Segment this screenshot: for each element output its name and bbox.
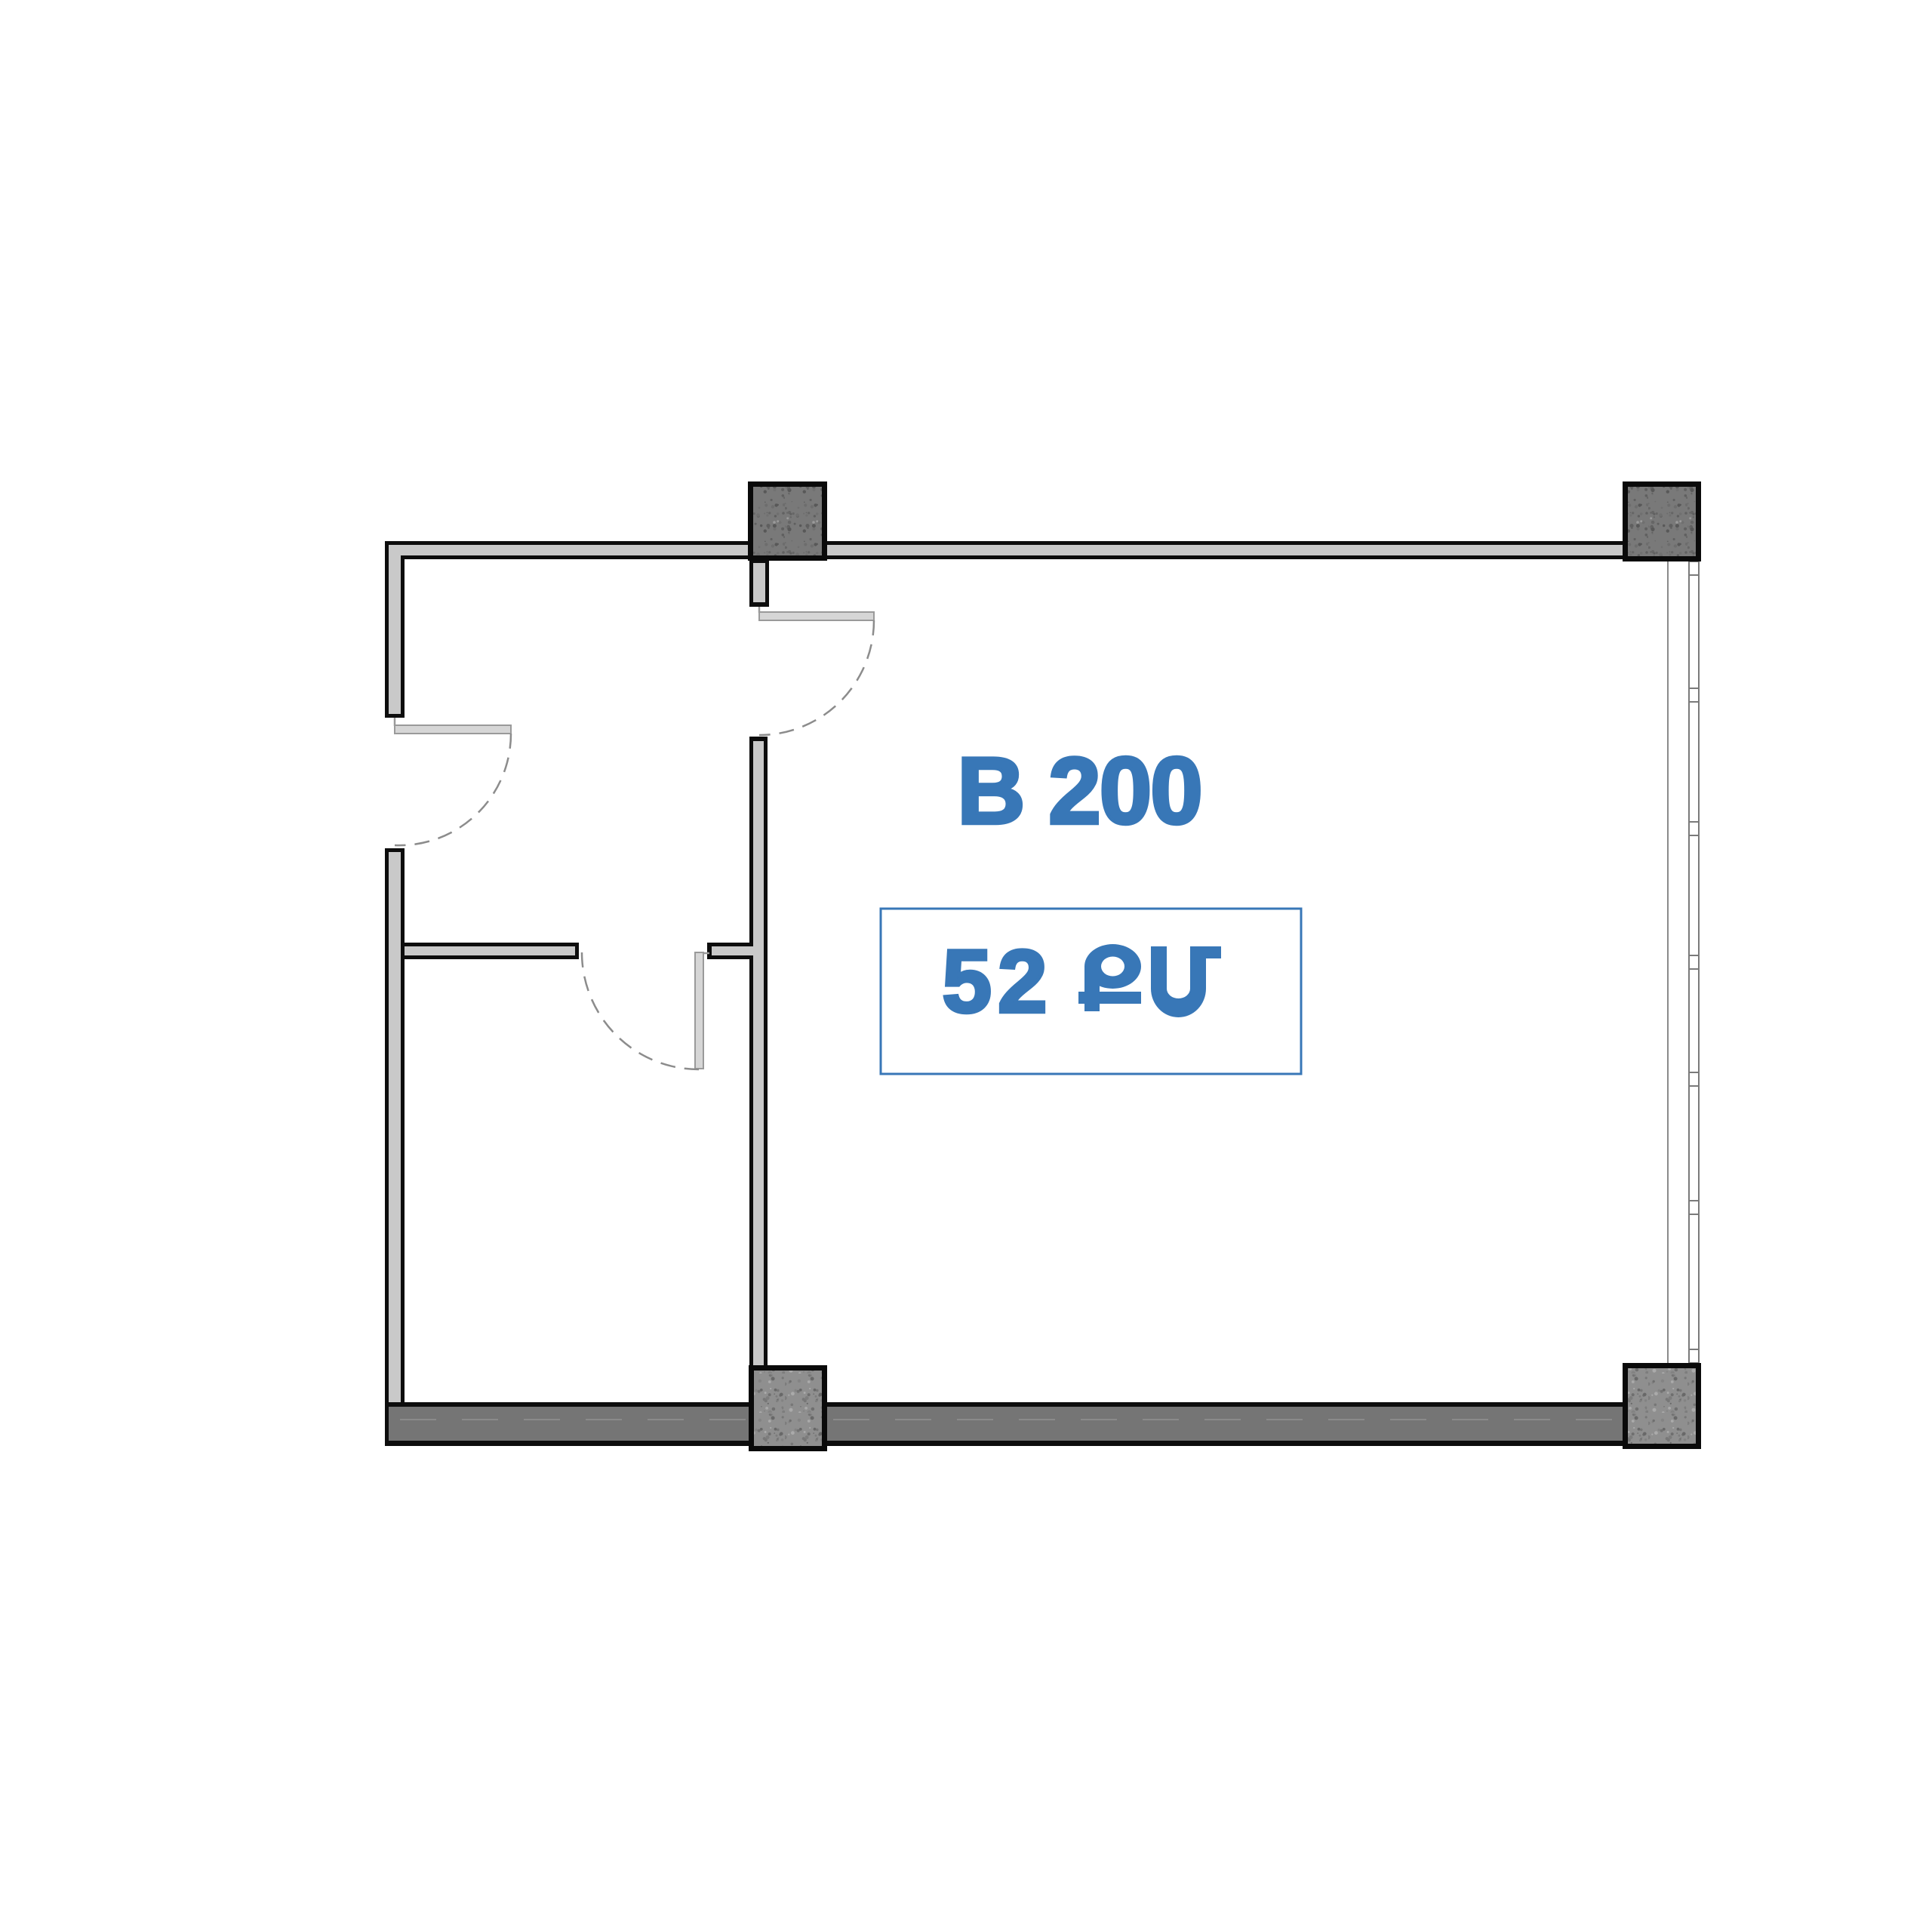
svg-text:B 200: B 200 xyxy=(957,739,1201,844)
svg-text:52: 52 xyxy=(942,932,1053,1032)
